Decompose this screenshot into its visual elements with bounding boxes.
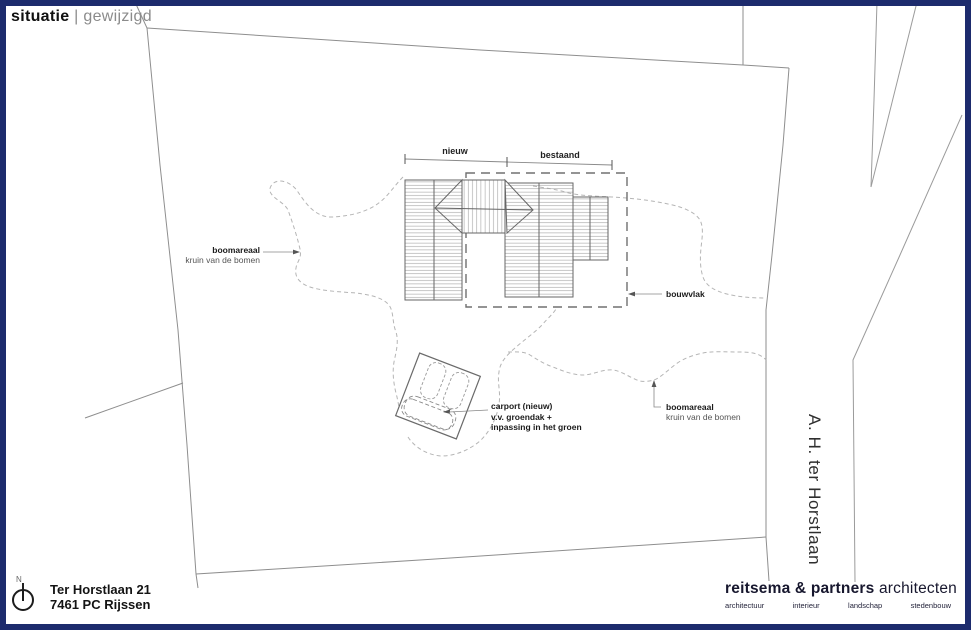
street-name-label: A. H. ter Horstlaan [804,414,824,584]
drawing-title-primary: situatie [11,8,69,25]
building-roof-plan [405,180,608,300]
carport-label-line1: carport (nieuw) [491,402,601,412]
firm-name-bold: reitsema & partners [725,580,874,597]
building-zone-label: bouwvlak [666,289,705,299]
project-address: Ter Horstlaan 21 7461 PC Rijssen [50,582,151,612]
firm-name-regular: architecten [879,580,957,597]
dimension-label-bestaand: bestaand [509,150,611,160]
north-arrow-needle [22,591,24,601]
drawing-title: situatie | gewijzigd [11,8,152,26]
dimension-label-nieuw: nieuw [405,146,505,156]
firm-discipline-stedenbouw: stedenbouw [911,601,951,610]
firm-disciplines: architectuur interieur landschap stedenb… [725,601,951,610]
tree-area-left-subtitle: kruin van de bomen [148,256,260,266]
tree-area-label-left: boomareaal kruin van de bomen [148,246,260,265]
firm-discipline-landschap: landschap [848,601,882,610]
north-letter: N [16,575,22,584]
drawing-title-separator: | [74,8,78,25]
carport-label: carport (nieuw) v.v. groendak + inpassin… [491,402,601,434]
site-plan-drawing [0,0,971,630]
firm-logo: reitsema & partners architecten architec… [725,580,957,610]
project-address-line2: 7461 PC Rijssen [50,597,151,612]
site-plan-sheet: situatie | gewijzigd nieuw bestaand boom… [0,0,971,630]
project-address-line1: Ter Horstlaan 21 [50,582,151,597]
carport-plan [396,353,481,439]
carport-label-line3: inpassing in het groen [491,423,601,433]
road-edge-lines [853,2,962,582]
drawing-title-secondary: gewijzigd [83,8,152,25]
annotation-arrowheads [293,250,656,414]
carport-label-line2: v.v. groendak + [491,413,601,423]
firm-discipline-interieur: interieur [793,601,820,610]
tree-area-right-subtitle: kruin van de bomen [666,413,786,423]
north-arrow: N [12,575,38,615]
firm-discipline-architectuur: architectuur [725,601,764,610]
firm-name: reitsema & partners architecten [725,580,957,598]
tree-area-label-right: boomareaal kruin van de bomen [666,403,786,422]
